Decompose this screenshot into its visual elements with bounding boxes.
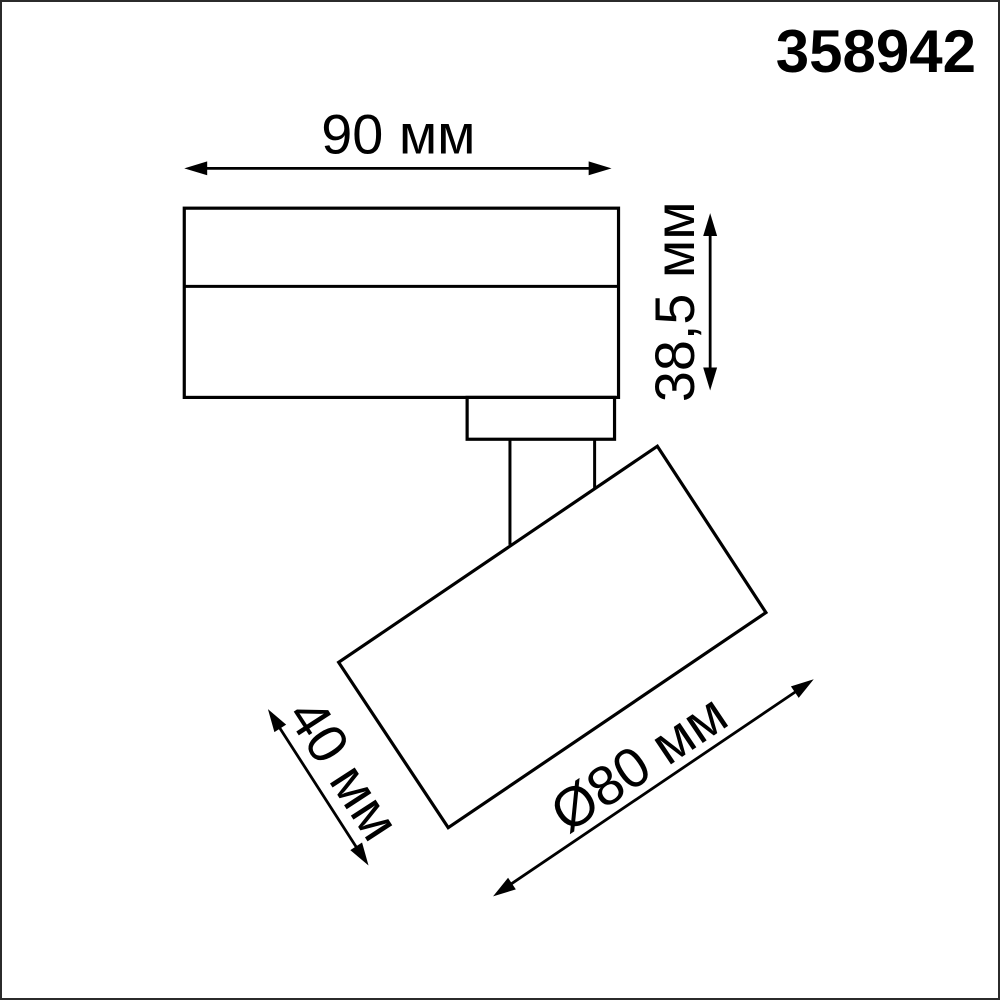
width-dimension: 90 мм: [184, 103, 611, 175]
track-mount-body: [184, 208, 618, 397]
adapter-connector: [467, 397, 614, 439]
spotlight-head: [339, 446, 766, 827]
width-arrowhead-left: [184, 161, 207, 175]
width-arrowhead-right: [589, 161, 612, 175]
dimension-drawing-page: 358942 90 мм 38,5 мм: [0, 0, 1000, 1000]
height-dimension: 38,5 мм: [644, 201, 717, 402]
width-dimension-label: 90 мм: [321, 103, 475, 165]
height-dimension-label: 38,5 мм: [644, 201, 706, 402]
head-diameter-arrowhead-top: [791, 679, 814, 698]
head-diameter-arrowhead-bottom: [493, 878, 516, 897]
track-mount-body-outline: [184, 208, 618, 397]
drawing-canvas: 90 мм 38,5 мм 40 мм Ø80 мм: [2, 2, 998, 998]
